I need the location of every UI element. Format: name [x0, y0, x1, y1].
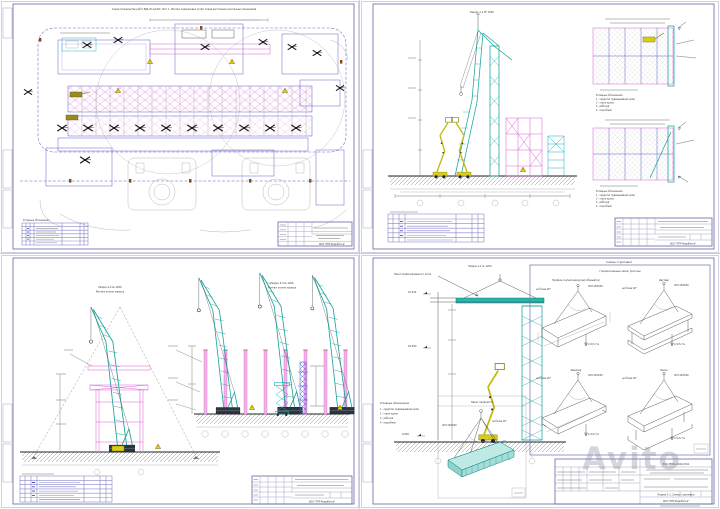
sheet1-top-title: Схема производства работ РДК-25 №1200. Л…: [112, 8, 257, 11]
sheet-name: Разрез 1-1. Схемы строповки: [658, 494, 695, 497]
sheet4-legend-title: Условные обозначения: [380, 402, 410, 405]
sling-label: СКП-10/5000: [588, 374, 603, 377]
schemes-subtitle: Горизонтальные связи, прогоны: [600, 270, 641, 273]
detail1-legend-title: Условные обозначения: [596, 94, 623, 97]
sheet4-section-title: Разрез 1-1 № 1200: [468, 265, 492, 268]
crawler-crane-1: [197, 278, 240, 414]
sheet4-legend-item: 2 - строп крана: [380, 413, 398, 416]
sheet4-org: ООО "ППР Разработка": [663, 500, 689, 503]
sheet-4-drawing: Разрез 1-1 № 1200 Пакет профилированного…: [360, 254, 720, 509]
doc-code: ЭКО-ППРм-2021/2011: [663, 463, 690, 466]
left-crane-group: [20, 307, 220, 475]
drawing-set: Схема производства работ РДК-25 №1200. Л…: [0, 0, 720, 509]
sheet4-leader-label: Пакет профилированного листа: [394, 273, 432, 276]
sheet-1-drawing: Схема производства работ РДК-25 №1200. Л…: [0, 0, 360, 254]
length-label: L=0,5-7 м: [674, 437, 685, 440]
elev-ground: 0.000: [402, 433, 409, 436]
sling-diagram-3: Швеллер не более 90° СКП-10/5000 L=0,5-7…: [536, 369, 606, 436]
beam-name: Профиль гнутый замкнутый (обрешётка): [552, 279, 600, 282]
sheet2-title-block: ООО "ППР Разработка": [615, 218, 712, 246]
dimension-lines: [60, 19, 268, 34]
margin-stamps: [363, 150, 372, 228]
tower-crane: [455, 14, 512, 176]
sheet1-title-block: ООО "ППР Разработка": [278, 222, 352, 246]
sheet4-legend-item: 1 - средство подмащивания (млз): [380, 408, 419, 411]
detail2-legend-item: 1 - средство подмащивания (млз): [596, 194, 635, 197]
crane-elevation: [388, 14, 577, 206]
scaffold-tower: [506, 118, 542, 176]
angle-label: не более 90°: [622, 287, 637, 290]
elev-mid: 10.000: [408, 345, 417, 348]
left-dim-lines: [56, 350, 92, 452]
length-label: L=0,5-7 м: [674, 343, 685, 346]
angle-label: не более 90°: [536, 377, 551, 380]
sheet4-elevation: 10.452 10.000 0.000: [394, 274, 566, 464]
margin-stamps: [3, 404, 12, 482]
detail-sling-label: СКП-10/5000: [442, 424, 457, 427]
wall-detail-1: Условные обозначения 1 - средство подмащ…: [593, 19, 696, 112]
elev-top: 10.452: [408, 291, 417, 294]
sling-diagram-2: Двутавр не более 90° СКП-10/5000 L=0,5-7…: [622, 279, 692, 354]
crawler-crane-3: [311, 275, 354, 414]
sheet3-org: ООО "ППР Разработка": [309, 501, 335, 504]
site-plan: [20, 19, 350, 233]
detail1-legend-item: 2 - строп крана: [596, 102, 614, 105]
length-label: L=0,5-7 м: [588, 433, 599, 436]
portal-frame: [88, 366, 150, 452]
sheet3-legend-table: [20, 474, 112, 502]
sheet2-section-title: Разрез 1-1 РГ-1200: [470, 11, 494, 14]
sheet4-legend: Условные обозначения 1 - средство подмащ…: [380, 402, 419, 425]
schemes-title: Схемы строповки: [606, 260, 632, 264]
sheet-2-drawing: Разрез 1-1 РГ-1200: [360, 0, 720, 254]
sling-diagram-4: Балка не более 90° СКП-10/5000 L=0,5-7 м: [622, 369, 692, 450]
sling-label: СКП-10/5000: [588, 285, 603, 288]
sheet4-legend-item: 3 - рабочий: [380, 417, 394, 420]
sheet-1-site-plan: Схема производства работ РДК-25 №1200. Л…: [0, 0, 360, 254]
stair-tower: [548, 136, 564, 176]
sling-diagram-1: Профиль гнутый замкнутый (обрешётка) не …: [536, 279, 610, 347]
sheet4-dims: [448, 304, 456, 440]
sheet3-title-block: ООО "ППР Разработка": [252, 476, 352, 504]
right-crane-group: [168, 273, 354, 437]
detail2-legend-title: Условные обозначения: [596, 190, 623, 193]
sheet3-right-subtitle: Монтаж колонн каркаса: [268, 287, 297, 290]
detail2-legend-item: 4 - подсобник: [596, 205, 613, 208]
detail1-legend-item: 3 - рабочий: [596, 105, 610, 108]
sheet4-title-block: ЭКО-ППРм-2021/2011 Разрез 1-1. Схемы стр…: [555, 459, 712, 506]
detail1-legend-item: 4 - подсобник: [596, 109, 613, 112]
detail1-legend-item: 1 - средство подмащивания (млз): [596, 98, 635, 101]
beam-name: Двутавр: [659, 279, 669, 282]
left-axis-bubbles: [94, 469, 144, 475]
sheet-4-slinging: Разрез 1-1 № 1200 Пакет профилированного…: [360, 254, 720, 509]
margin-stamps: [3, 8, 12, 228]
detail-angle-label: не более 90°: [492, 420, 507, 423]
beam-name: Швеллер: [571, 369, 582, 372]
angle-label: не более 90°: [622, 377, 637, 380]
sheet3-right-title: Разрез 3-3 № 1200: [270, 282, 294, 285]
detail2-legend-item: 2 - строп крана: [596, 198, 614, 201]
sheet3-left-subtitle: Монтаж колонн каркаса: [96, 291, 125, 294]
sheet-3-drawing: Разрез 2-2 № 1200 Монтаж колонн каркаса: [0, 254, 360, 509]
sheet1-org: ООО "ППР Разработка": [319, 243, 345, 246]
sheets-grid: Схема производства работ РДК-25 №1200. Л…: [0, 0, 720, 509]
margin-stamps: [363, 404, 372, 482]
wall-detail-2: Условные обозначения 1 - средство подмащ…: [593, 120, 694, 208]
detail2-legend-item: 3 - рабочий: [596, 201, 610, 204]
angle-label: не более 90°: [536, 288, 551, 291]
sheet2-spec-table: [388, 212, 484, 242]
sheet2-org: ООО "ППР Разработка": [670, 243, 696, 246]
sheet1-legend-title: Условные обозначения: [23, 219, 50, 222]
detail-title: Пакет профлиста: [471, 401, 494, 404]
sheet3-left-title: Разрез 2-2 № 1200: [98, 286, 122, 289]
sheet-2-elevation: Разрез 1-1 РГ-1200: [360, 0, 720, 254]
sheet1-legend-table: Условные обозначения: [22, 219, 88, 245]
sheet4-legend-item: 4 - подсобник: [380, 422, 397, 425]
sheet-3-elevations: Разрез 2-2 № 1200 Монтаж колонн каркаса: [0, 254, 360, 509]
sling-label: СКП-10/5000: [674, 284, 689, 287]
boom-lift-1: [433, 118, 452, 179]
axis-bubbles: [417, 200, 559, 206]
beam-name: Балка: [661, 369, 669, 372]
sling-label: СКП-10/5000: [674, 374, 689, 377]
length-label: L=0,5-7 м: [588, 343, 599, 346]
slinging-schemes: Схемы строповки Горизонтальные связи, пр…: [530, 260, 710, 455]
right-axis-bubbles: [202, 431, 348, 437]
elevation-dimensions: [395, 40, 570, 198]
lattice-tower: [522, 306, 542, 440]
